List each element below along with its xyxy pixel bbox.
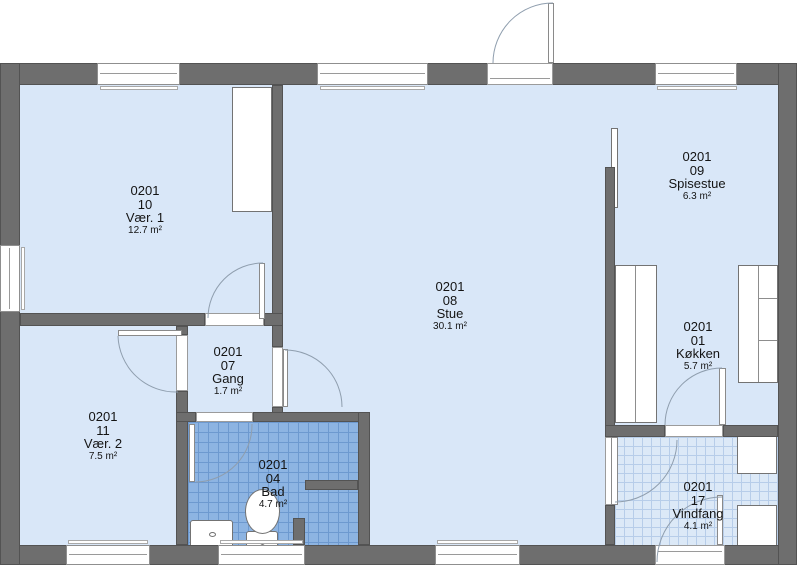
room-number: 17: [672, 494, 723, 508]
window: [435, 545, 520, 565]
door-threshold: [658, 551, 722, 552]
door-leaf: [548, 3, 554, 63]
door-opening: [272, 347, 283, 407]
window: [317, 63, 428, 85]
wall-segment-left: [0, 63, 20, 565]
door-leaf: [611, 437, 618, 505]
sink-drain: [209, 532, 216, 537]
room-number: 10: [126, 198, 164, 212]
window: [218, 545, 305, 565]
room-code: 0201: [84, 410, 122, 424]
door-opening: [205, 313, 264, 326]
room-label-stue: 0201 08 Stue 30.1 m²: [433, 280, 467, 332]
window-sill: [21, 247, 25, 310]
door-leaf: [259, 263, 265, 319]
room-area: 1.7 m²: [212, 386, 244, 397]
entrance-door-opening: [487, 63, 553, 85]
vindfang-cabinet-top: [737, 436, 777, 474]
window: [97, 63, 180, 85]
room-name: Køkken: [676, 347, 720, 361]
room-label-kokken: 0201 01 Køkken 5.7 m²: [676, 320, 720, 372]
wall-segment: [176, 412, 196, 422]
room-area: 30.1 m²: [433, 321, 467, 332]
room-name: Spisestue: [668, 177, 725, 191]
wardrobe: [232, 87, 272, 212]
room-code: 0201: [433, 280, 467, 294]
window-sill: [100, 86, 178, 90]
window: [66, 545, 150, 565]
room-code: 0201: [668, 150, 725, 164]
wall-segment: [20, 313, 205, 326]
counter-divider: [758, 298, 777, 299]
wall-segment-right: [778, 63, 797, 565]
window-sill: [68, 540, 148, 544]
door-opening: [196, 412, 253, 422]
window-sill: [657, 86, 737, 90]
window: [655, 63, 737, 85]
room-name: Vær. 2: [84, 437, 122, 451]
window-mullion: [69, 554, 147, 555]
wall-segment: [253, 412, 370, 422]
vindfang-cabinet-bottom: [737, 505, 777, 550]
window-sill: [437, 540, 518, 544]
window-mullion: [221, 554, 302, 555]
door-leaf: [118, 330, 182, 336]
room-number: 08: [433, 294, 467, 308]
door-opening: [176, 335, 188, 391]
room-area: 4.1 m²: [672, 521, 723, 532]
door-opening: [665, 425, 723, 437]
room-name: Vindfang: [672, 507, 723, 521]
room-label-gang: 0201 07 Gang 1.7 m²: [212, 345, 244, 397]
room-number: 11: [84, 424, 122, 438]
room-name: Bad: [259, 485, 288, 499]
counter-divider: [758, 340, 777, 341]
room-name: Gang: [212, 372, 244, 386]
door-leaf: [719, 368, 726, 425]
room-number: 07: [212, 359, 244, 373]
floor-plan-canvas: 0201 10 Vær. 1 12.7 m² 0201 08 Stue 30.1…: [0, 0, 800, 572]
room-label-spisestue: 0201 09 Spisestue 6.3 m²: [668, 150, 725, 202]
window-mullion: [320, 73, 425, 74]
room-number: 09: [668, 164, 725, 178]
wall-segment: [264, 313, 283, 326]
entrance-door-opening: [655, 545, 725, 565]
wall-segment: [605, 425, 665, 437]
room-label-vindfang: 0201 17 Vindfang 4.1 m²: [672, 480, 723, 532]
window-mullion: [100, 73, 177, 74]
room-number: 04: [259, 472, 288, 486]
room-area: 12.7 m²: [126, 225, 164, 236]
window-mullion: [658, 73, 734, 74]
room-code: 0201: [676, 320, 720, 334]
room-label-vaer-2: 0201 11 Vær. 2 7.5 m²: [84, 410, 122, 462]
room-code: 0201: [212, 345, 244, 359]
window-sill: [220, 540, 303, 544]
room-name: Vær. 1: [126, 211, 164, 225]
wall-segment: [723, 425, 778, 437]
room-label-vaer-1: 0201 10 Vær. 1 12.7 m²: [126, 184, 164, 236]
room-area: 7.5 m²: [84, 451, 122, 462]
room-number: 01: [676, 334, 720, 348]
room-area: 4.7 m²: [259, 499, 288, 510]
room-name: Stue: [433, 307, 467, 321]
window-mullion: [9, 248, 10, 309]
door-leaf: [283, 349, 288, 407]
window: [0, 245, 20, 312]
room-area: 6.3 m²: [668, 191, 725, 202]
room-code: 0201: [259, 458, 288, 472]
kitchen-counter-left: [615, 265, 657, 423]
door-swing-arc: [493, 3, 553, 63]
wall-segment: [358, 412, 370, 545]
room-code: 0201: [126, 184, 164, 198]
wall-segment: [605, 167, 615, 437]
window-sill: [320, 86, 425, 90]
room-area: 5.7 m²: [676, 361, 720, 372]
shower-partition-wall: [305, 480, 358, 490]
door-leaf: [189, 424, 195, 482]
room-label-bad: 0201 04 Bad 4.7 m²: [259, 458, 288, 510]
counter-divider: [635, 266, 636, 422]
window-mullion: [438, 554, 517, 555]
counter-divider: [758, 266, 759, 382]
door-threshold: [490, 78, 550, 79]
wall-segment: [605, 505, 615, 545]
kitchen-counter-right: [738, 265, 778, 383]
wall-segment: [272, 85, 283, 347]
room-code: 0201: [672, 480, 723, 494]
